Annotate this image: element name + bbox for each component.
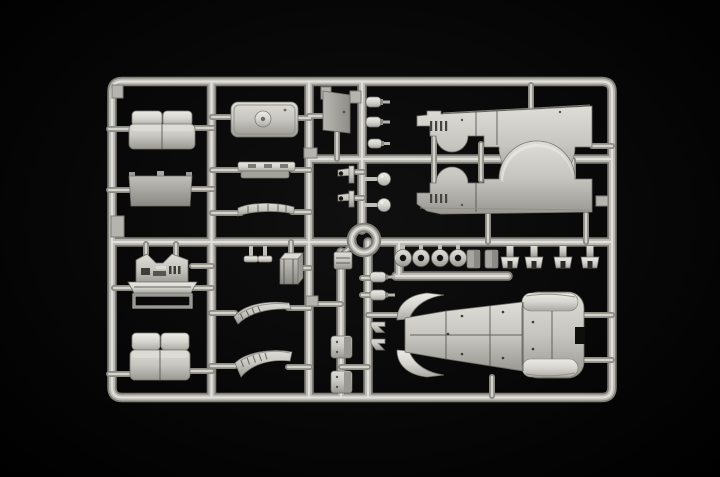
part-bench-seat-upper bbox=[129, 111, 195, 149]
part-bench-seat-lower bbox=[130, 333, 190, 380]
part-mount-plugs bbox=[467, 250, 498, 268]
part-fuel-tank bbox=[280, 253, 303, 284]
part-engine-firewall bbox=[136, 254, 188, 284]
part-wheel-hubs bbox=[395, 245, 467, 267]
part-axle-bullets bbox=[370, 272, 395, 300]
part-muffler-bullets bbox=[366, 97, 390, 148]
part-leaf-spring bbox=[238, 203, 294, 216]
part-floor-plate bbox=[128, 282, 197, 293]
part-cab-roof-panel bbox=[231, 102, 298, 137]
part-open-frame bbox=[134, 295, 191, 307]
part-fender-skirt-lower bbox=[235, 350, 292, 377]
part-towing-clamps bbox=[371, 322, 385, 350]
part-tow-hooks bbox=[338, 166, 354, 207]
part-gear-levers bbox=[363, 173, 391, 212]
part-fender-skirt-upper bbox=[234, 302, 291, 324]
part-small-square bbox=[334, 252, 352, 269]
part-seat-rail bbox=[238, 162, 295, 178]
part-main-body-tub bbox=[397, 292, 585, 378]
part-pedals bbox=[244, 246, 272, 262]
part-windscreen-frame bbox=[129, 171, 192, 206]
part-door-panel bbox=[323, 91, 350, 133]
sprue-photo bbox=[0, 0, 720, 477]
part-bracket-clips bbox=[501, 246, 599, 268]
